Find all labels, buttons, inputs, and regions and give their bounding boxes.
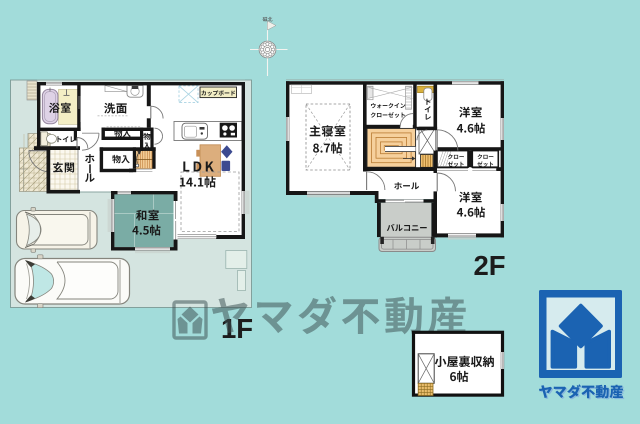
svg-text:2F: 2F bbox=[473, 250, 505, 281]
